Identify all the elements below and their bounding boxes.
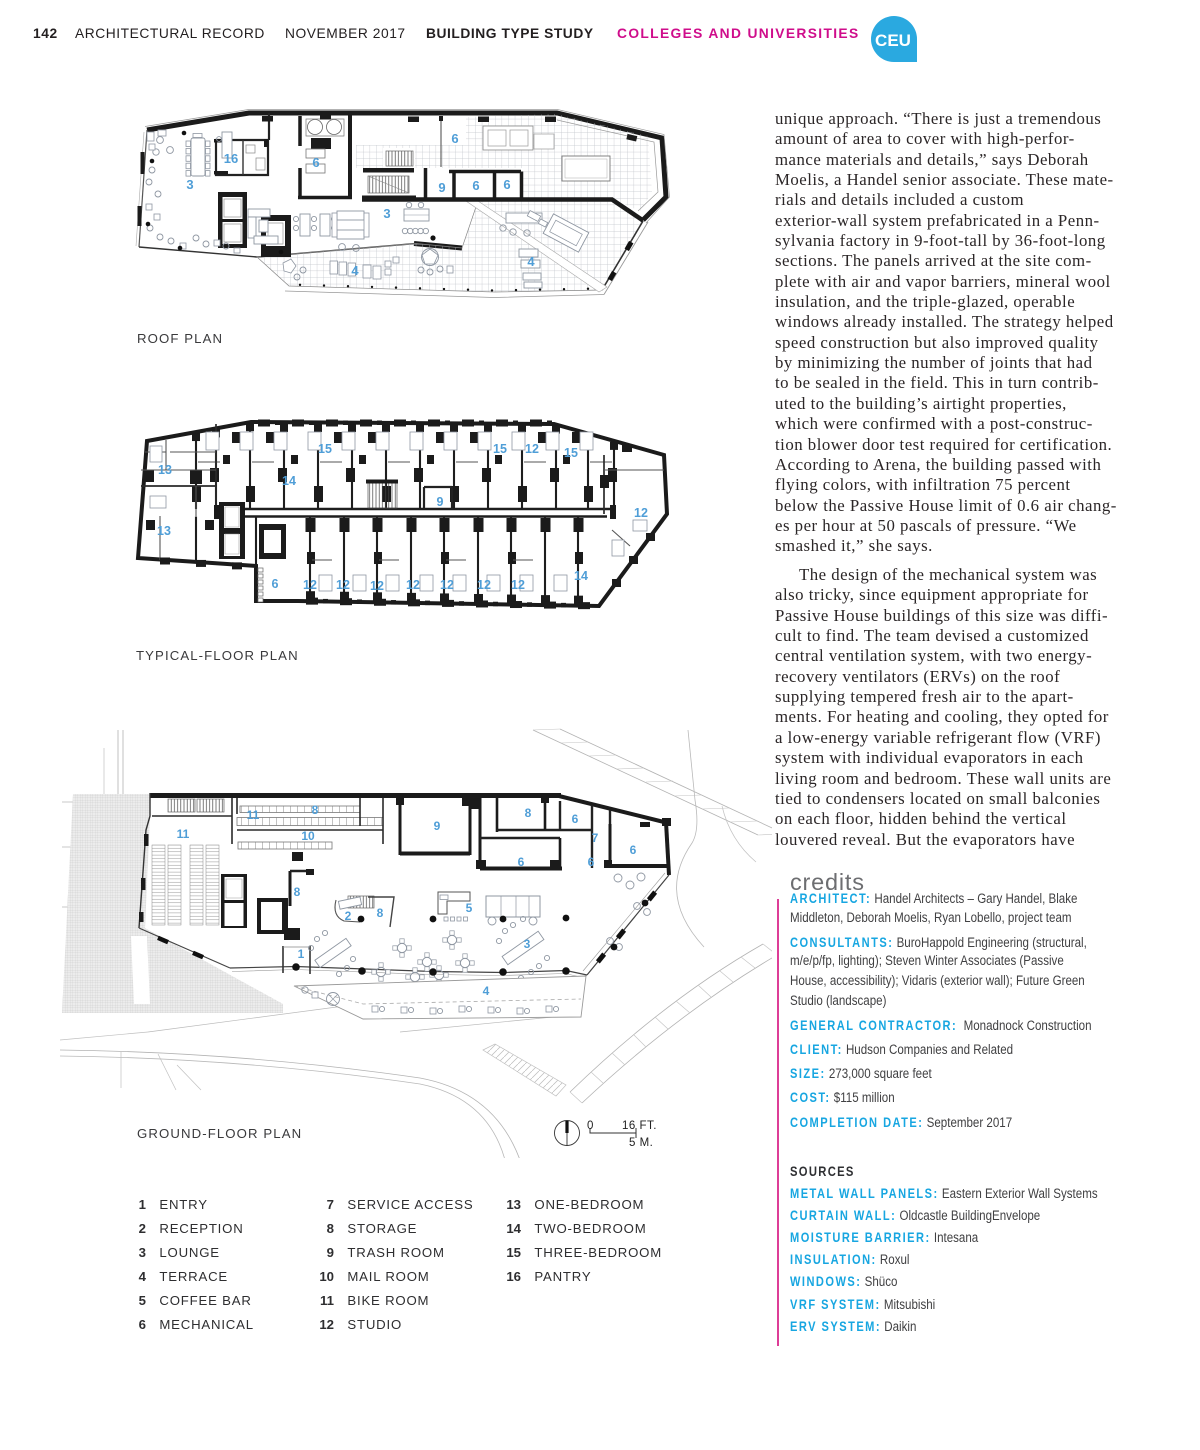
- svg-text:11: 11: [247, 808, 260, 822]
- svg-text:6: 6: [472, 178, 479, 193]
- svg-text:6: 6: [572, 812, 579, 826]
- svg-text:6: 6: [451, 131, 458, 146]
- svg-text:8: 8: [294, 885, 301, 899]
- svg-text:9: 9: [437, 495, 444, 509]
- svg-text:6: 6: [312, 155, 319, 170]
- svg-text:12: 12: [440, 578, 454, 592]
- svg-text:16 FT.: 16 FT.: [622, 1120, 657, 1132]
- svg-text:6: 6: [588, 855, 595, 869]
- svg-text:8: 8: [525, 806, 532, 820]
- svg-text:10: 10: [301, 829, 315, 843]
- svg-text:5: 5: [466, 901, 473, 915]
- svg-text:14: 14: [574, 569, 588, 583]
- svg-text:9: 9: [434, 819, 441, 833]
- svg-text:1: 1: [298, 947, 305, 961]
- svg-text:3: 3: [383, 206, 390, 221]
- svg-text:13: 13: [157, 524, 171, 538]
- svg-text:3: 3: [524, 937, 531, 951]
- svg-text:12: 12: [634, 506, 648, 520]
- svg-text:15: 15: [318, 442, 332, 456]
- svg-text:4: 4: [483, 984, 490, 998]
- svg-text:11: 11: [177, 827, 190, 841]
- svg-text:7: 7: [592, 831, 599, 845]
- svg-text:12: 12: [477, 578, 491, 592]
- svg-text:16: 16: [224, 151, 238, 166]
- svg-text:12: 12: [303, 578, 317, 592]
- svg-text:12: 12: [511, 578, 525, 592]
- svg-text:6: 6: [503, 177, 510, 192]
- svg-text:6: 6: [272, 577, 279, 591]
- svg-text:4: 4: [527, 254, 535, 269]
- svg-text:9: 9: [438, 180, 445, 195]
- svg-text:12: 12: [525, 442, 539, 456]
- svg-text:12: 12: [336, 578, 350, 592]
- svg-text:8: 8: [312, 803, 319, 817]
- svg-text:3: 3: [186, 177, 193, 192]
- svg-text:13: 13: [158, 463, 172, 477]
- svg-text:4: 4: [351, 263, 359, 278]
- svg-text:12: 12: [370, 579, 384, 593]
- svg-text:5 M.: 5 M.: [629, 1137, 653, 1149]
- svg-text:12: 12: [406, 578, 420, 592]
- svg-text:15: 15: [493, 442, 507, 456]
- svg-text:8: 8: [377, 906, 384, 920]
- svg-text:14: 14: [282, 474, 296, 488]
- svg-text:6: 6: [518, 855, 525, 869]
- svg-text:6: 6: [630, 843, 637, 857]
- svg-text:0: 0: [587, 1120, 594, 1132]
- svg-text:15: 15: [564, 446, 578, 460]
- svg-text:2: 2: [345, 909, 352, 923]
